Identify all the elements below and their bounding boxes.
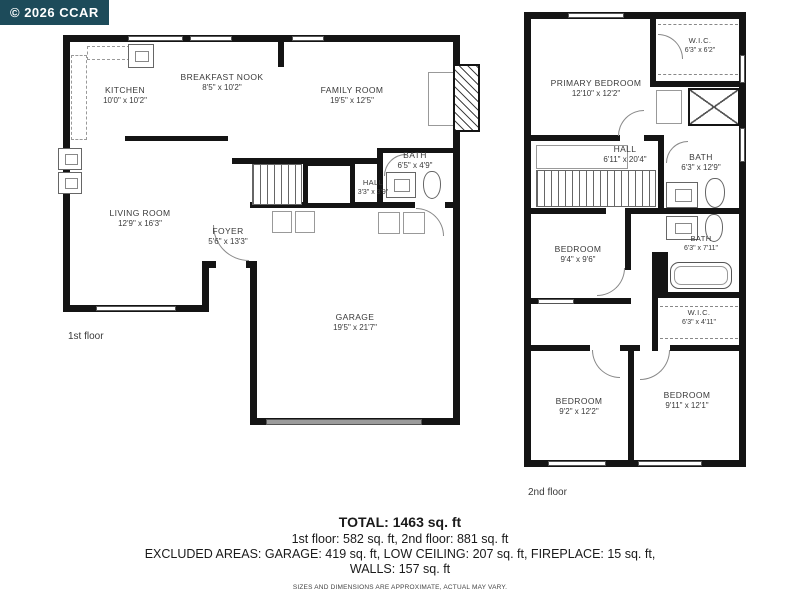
burners — [65, 154, 78, 165]
wall — [445, 202, 460, 208]
copyright-badge: © 2026 CCAR — [0, 0, 109, 25]
stairs — [252, 164, 302, 205]
wall — [63, 35, 460, 42]
room-name: FOYER — [193, 226, 263, 237]
room-name: LIVING ROOM — [80, 208, 200, 219]
total-area: TOTAL: 1463 sq. ft — [0, 514, 800, 530]
floorplan-page: © 2026 CCAR — [0, 0, 800, 600]
window — [96, 306, 176, 311]
fireplace-hearth — [428, 72, 454, 126]
disclaimer: SIZES AND DIMENSIONS ARE APPROXIMATE, AC… — [0, 584, 800, 591]
area-summary: TOTAL: 1463 sq. ft 1st floor: 582 sq. ft… — [0, 514, 800, 591]
appliance — [272, 211, 292, 233]
wall — [250, 264, 257, 425]
room-dims: 9'4" x 9'6" — [528, 255, 628, 265]
chimney-icon — [688, 88, 740, 126]
second-floor-tag: 2nd floor — [528, 487, 567, 498]
wall — [650, 12, 656, 87]
room-name: BATH — [666, 234, 736, 244]
room-label-wic-1: W.I.C. 6'3" x 6'2" — [660, 36, 740, 55]
stove-icon — [58, 172, 82, 194]
room-dims: 19'5" x 12'5" — [292, 96, 412, 106]
room-dims: 12'9" x 16'3" — [80, 219, 200, 229]
room-name: FAMILY ROOM — [292, 85, 412, 96]
window — [538, 299, 574, 304]
room-dims: 12'10" x 12'2" — [532, 89, 660, 99]
closet-rod — [658, 24, 738, 25]
room-label-family-room: FAMILY ROOM 19'5" x 12'5" — [292, 85, 412, 106]
room-name: BATH — [666, 152, 736, 163]
wall — [377, 148, 383, 206]
room-label-bedroom-bl: BEDROOM 9'2" x 12'2" — [528, 396, 630, 417]
window — [740, 55, 745, 83]
wall — [524, 345, 590, 351]
primary-bedroom-door-arc — [618, 110, 644, 136]
burners — [65, 178, 78, 189]
sink-basin — [675, 223, 692, 235]
garage-door — [266, 419, 422, 425]
window — [548, 461, 606, 466]
room-dims: 6'11" x 20'4" — [584, 155, 666, 165]
closet-rod — [660, 306, 738, 307]
window — [638, 461, 702, 466]
room-dims: 9'11" x 12'1" — [636, 401, 738, 411]
sink-basin — [135, 51, 149, 63]
wall — [524, 135, 620, 141]
room-label-bedroom-mid: BEDROOM 9'4" x 9'6" — [528, 244, 628, 265]
wall — [125, 136, 228, 141]
room-dims: 3'3" x 3'9" — [342, 188, 404, 197]
bedroom-door-arc — [640, 350, 670, 380]
floor-areas: 1st floor: 582 sq. ft, 2nd floor: 881 sq… — [0, 532, 800, 546]
room-name: GARAGE — [295, 312, 415, 323]
room-name: BREAKFAST NOOK — [152, 72, 292, 83]
room-label-living-room: LIVING ROOM 12'9" x 16'3" — [80, 208, 200, 229]
bedroom-door-arc — [592, 350, 620, 378]
wall — [652, 252, 668, 294]
closet-rod — [660, 338, 738, 339]
room-name: BEDROOM — [528, 244, 628, 255]
room-dims: 5'6" x 13'3" — [193, 237, 263, 247]
appliance — [378, 212, 400, 234]
room-label-bath-upper: BATH 6'3" x 12'9" — [666, 152, 736, 173]
room-dims: 6'3" x 12'9" — [666, 163, 736, 173]
wall — [652, 292, 746, 298]
window — [190, 36, 232, 41]
room-dims: 6'3" x 4'11" — [660, 318, 738, 327]
room-label-bedroom-br: BEDROOM 9'11" x 12'1" — [636, 390, 738, 411]
room-label-bath-1f: BATH 6'5" x 4'9" — [384, 150, 446, 171]
bath-vanity — [666, 182, 698, 208]
wall — [524, 12, 746, 19]
room-label-hall-2f: HALL 6'11" x 20'4" — [584, 144, 666, 165]
kitchen-sink — [128, 44, 154, 68]
room-dims: 6'3" x 7'11" — [666, 244, 736, 253]
closet-rod — [658, 74, 738, 75]
wall — [652, 298, 658, 351]
bathtub-icon — [670, 262, 732, 289]
room-dims: 6'5" x 4'9" — [384, 161, 446, 171]
wall — [202, 261, 209, 312]
room-label-wic-2: W.I.C. 6'3" x 4'11" — [660, 308, 738, 327]
room-name: BEDROOM — [528, 396, 630, 407]
room-label-garage: GARAGE 19'5" x 21'7" — [295, 312, 415, 333]
toilet-icon — [423, 171, 441, 199]
room-name: BEDROOM — [636, 390, 738, 401]
room-name: W.I.C. — [660, 308, 738, 318]
walls-area: WALLS: 157 sq. ft — [0, 562, 800, 576]
first-floor-tag: 1st floor — [68, 331, 104, 342]
room-label-foyer: FOYER 5'6" x 13'3" — [193, 226, 263, 247]
room-label-primary-bedroom: PRIMARY BEDROOM 12'10" x 12'2" — [532, 78, 660, 99]
wall — [670, 345, 746, 351]
room-name: HALL — [342, 178, 404, 188]
window — [740, 128, 745, 162]
room-name: BATH — [384, 150, 446, 161]
bedroom-door-arc — [597, 268, 625, 296]
room-dims: 19'5" x 21'7" — [295, 323, 415, 333]
wall — [278, 35, 284, 67]
wall — [246, 261, 257, 268]
garage-door-arc — [416, 208, 444, 236]
appliance — [295, 211, 315, 233]
wall — [650, 81, 746, 87]
window — [568, 13, 624, 18]
room-name: HALL — [584, 144, 666, 155]
room-name: W.I.C. — [660, 36, 740, 46]
toilet-icon — [705, 178, 725, 208]
wall — [628, 208, 664, 214]
sink-basin — [675, 189, 692, 202]
wall — [658, 208, 746, 214]
window — [292, 36, 324, 41]
wall — [524, 208, 606, 214]
room-dims: 10'0" x 10'2" — [75, 96, 175, 106]
stairs — [536, 170, 656, 207]
fireplace-icon — [453, 64, 480, 132]
excluded-areas: EXCLUDED AREAS: GARAGE: 419 sq. ft, LOW … — [0, 547, 800, 561]
room-label-breakfast-nook: BREAKFAST NOOK 8'5" x 10'2" — [152, 72, 292, 93]
stove-icon — [58, 148, 82, 170]
window — [128, 36, 183, 41]
room-dims: 8'5" x 10'2" — [152, 83, 292, 93]
room-label-hall-1f: HALL 3'3" x 3'9" — [342, 178, 404, 197]
room-name: PRIMARY BEDROOM — [532, 78, 660, 89]
room-label-bath-lower: BATH 6'3" x 7'11" — [666, 234, 736, 253]
room-dims: 9'2" x 12'2" — [528, 407, 630, 417]
room-dims: 6'3" x 6'2" — [660, 46, 740, 55]
